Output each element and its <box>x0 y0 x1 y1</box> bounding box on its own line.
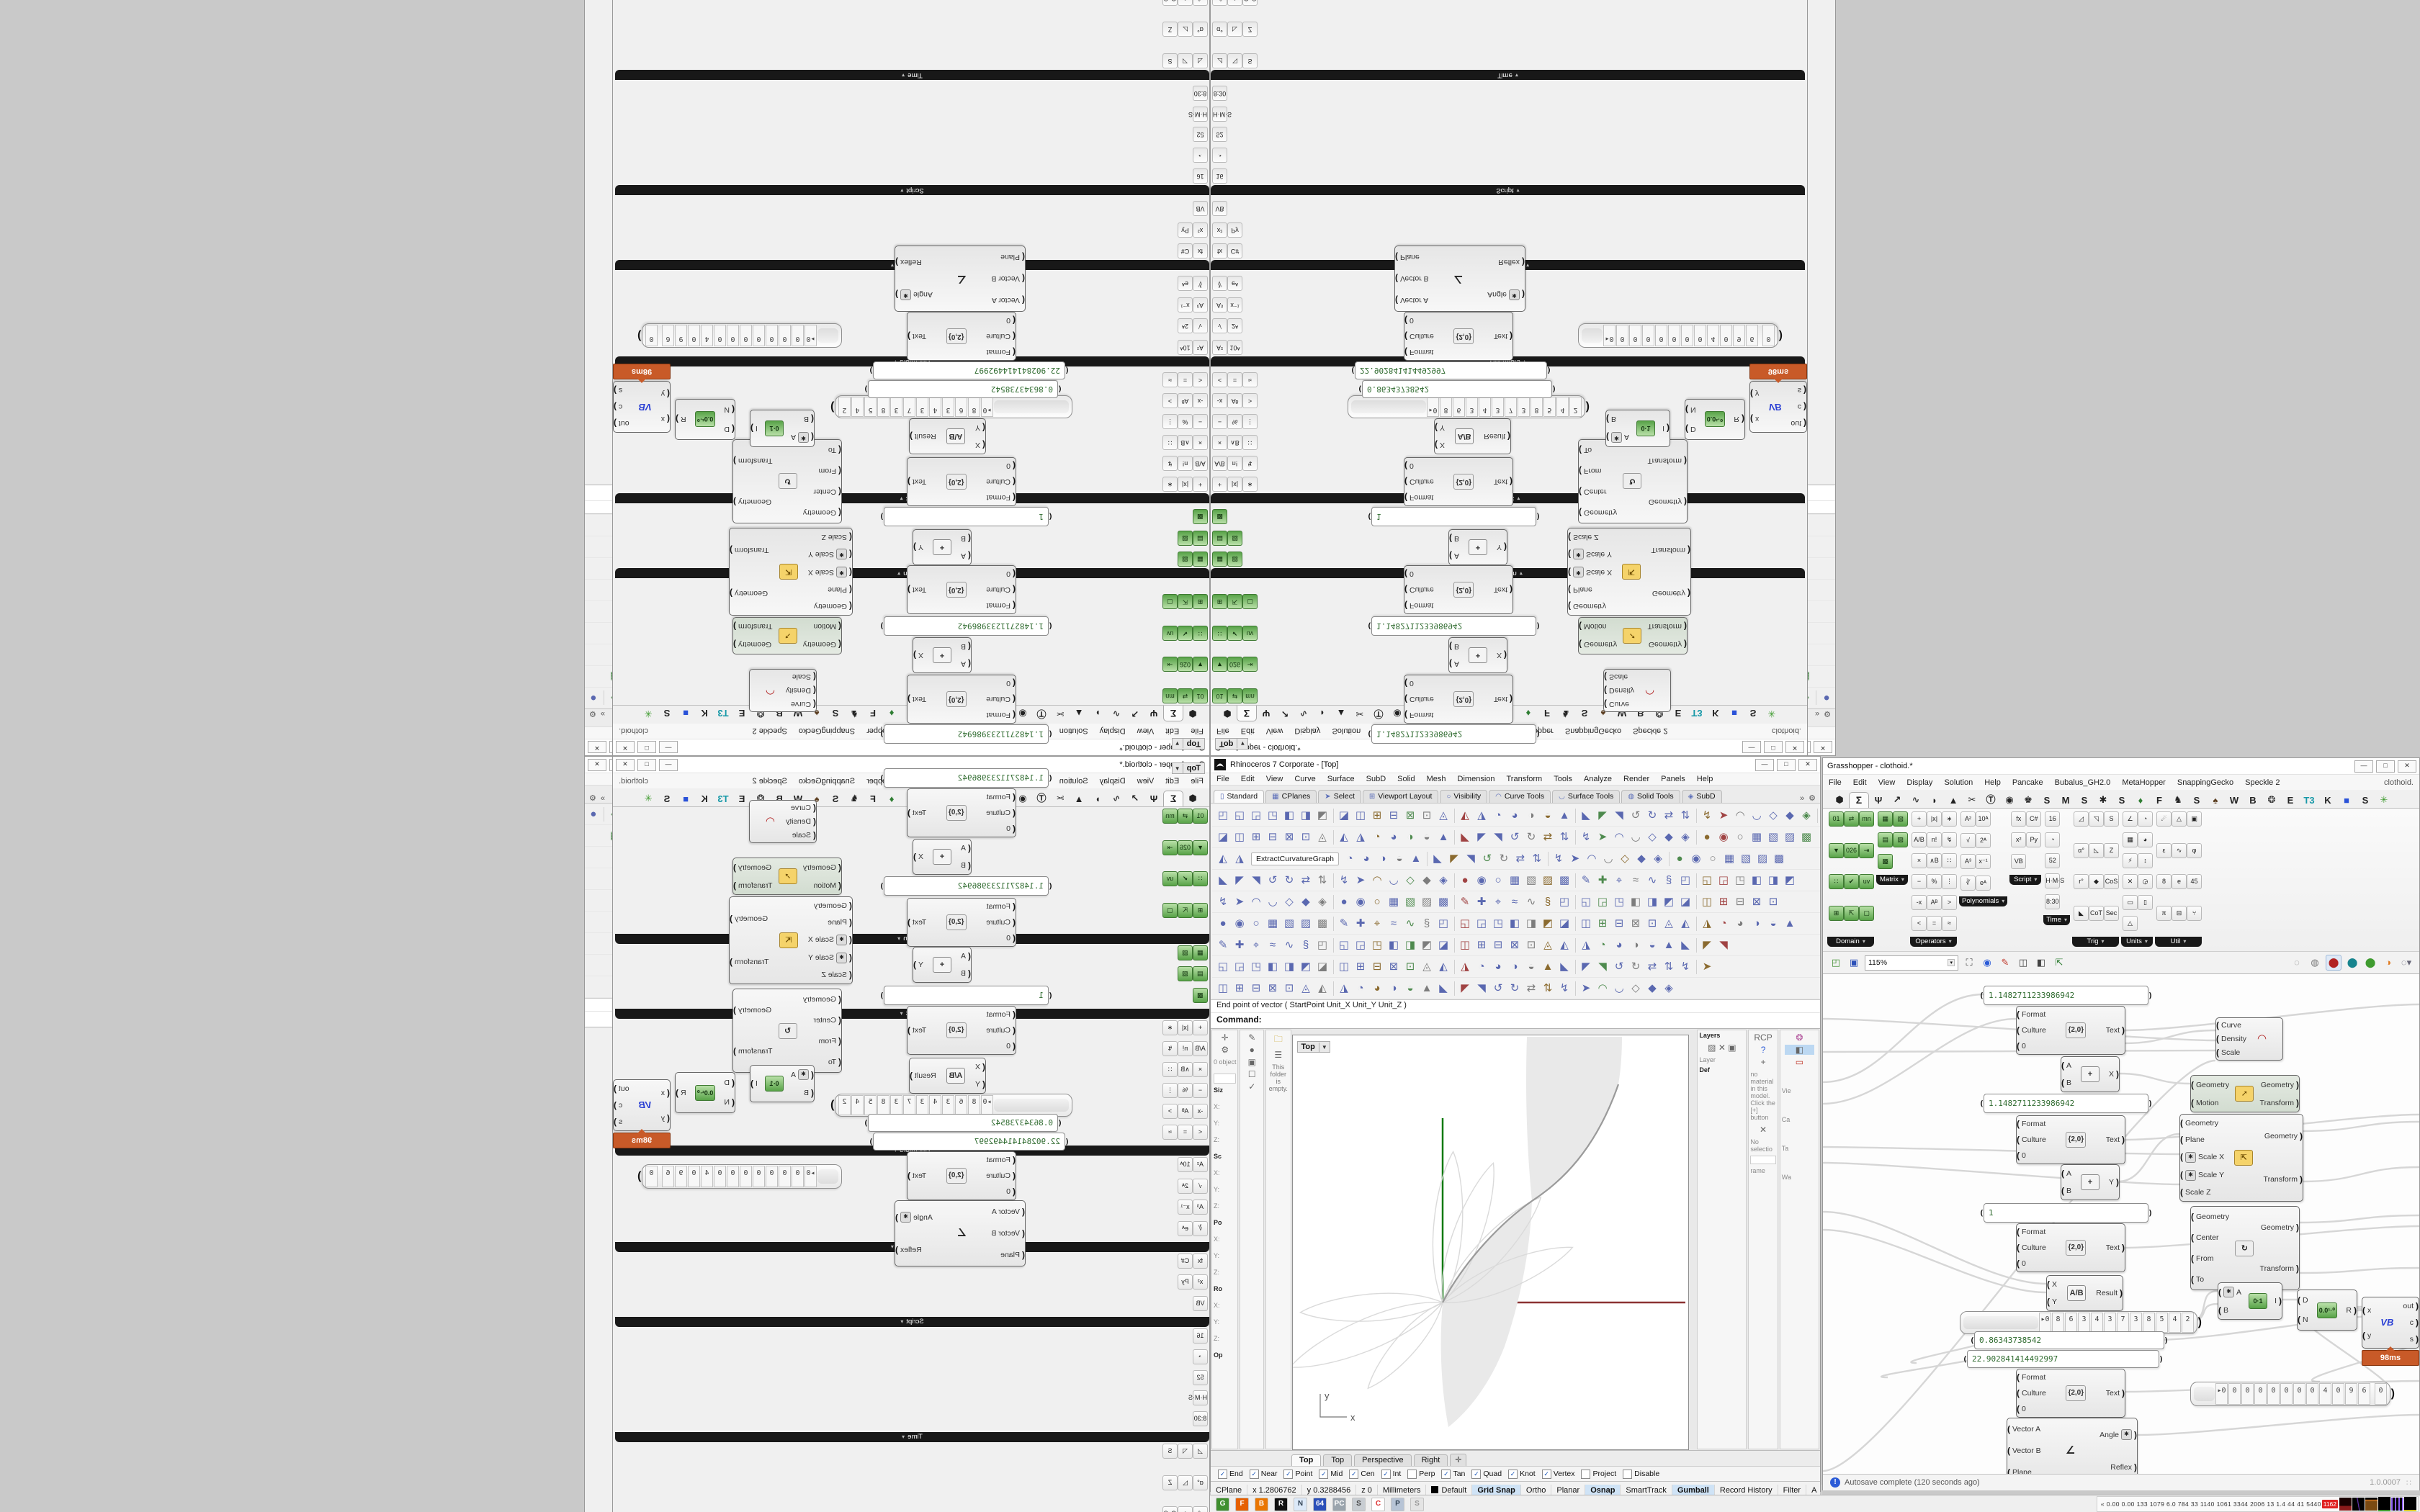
gh-component-icon[interactable]: ◿ <box>2074 811 2089 827</box>
slider-digit[interactable]: 3 <box>890 1095 902 1115</box>
expression-icon[interactable]: ✱ <box>1573 567 1584 577</box>
gh-component-icon[interactable]: + <box>1193 1020 1208 1035</box>
toolbar-icon[interactable]: ◤ <box>1474 829 1489 845</box>
expression-icon[interactable]: ✱ <box>1573 549 1584 559</box>
gh-component-icon[interactable]: Aᴮ <box>1927 895 1942 910</box>
gh-component[interactable]: FormatCulture0{2,0}Text <box>907 788 1016 837</box>
input-port-label[interactable]: Center <box>813 1016 836 1025</box>
gh-tab-1-maths[interactable]: Σ <box>1849 792 1869 808</box>
gh-component[interactable]: CurveDensityScale◠ <box>749 800 817 843</box>
gh-tab-1-maths[interactable]: Σ <box>1163 791 1183 806</box>
resize-grip-icon[interactable]: ∷ <box>2406 1478 2412 1488</box>
gh-tab-0[interactable]: ⬢ <box>1183 706 1202 721</box>
toolbar-icon[interactable]: ◒ <box>1540 808 1556 824</box>
slider-digit[interactable]: 2 <box>838 397 851 417</box>
gh-component-icon[interactable]: ⋮ <box>1162 1083 1178 1098</box>
toolbar-icon[interactable]: ◕ <box>1507 808 1523 824</box>
panel-icon[interactable]: ✛ <box>1212 1032 1237 1043</box>
gh-menu-bubalus_gh2.0[interactable]: Bubalus_GH2.0 <box>2049 778 2117 788</box>
gh-number-slider[interactable]: ▸0000000040960 <box>642 323 842 348</box>
gh-component-icon[interactable]: ▧ <box>1178 552 1193 567</box>
input-port-label[interactable]: Vector B <box>991 274 1020 283</box>
gh-component-icon[interactable]: VB <box>1193 201 1208 216</box>
gh-tab-29[interactable]: ✳ <box>639 791 658 806</box>
toolbar-icon[interactable]: ◱ <box>1232 808 1247 824</box>
gh-group-label[interactable]: Polynomials▾ <box>1959 896 2007 906</box>
gh-component-icon[interactable]: ⇄ <box>1227 688 1242 703</box>
slider-digit[interactable]: 4 <box>851 1095 864 1115</box>
gh-component-icon[interactable]: 026 <box>1227 657 1242 672</box>
toolbar-icon[interactable]: ◭ <box>1435 959 1451 975</box>
toolbar-icon[interactable]: ◳ <box>1369 937 1385 953</box>
input-port-label[interactable]: B <box>961 642 966 651</box>
toolbar-tab-cplanes[interactable]: ▦CPlanes <box>1265 790 1317 803</box>
gh-component-icon[interactable]: ∧B <box>1927 853 1942 868</box>
input-port-label[interactable]: x <box>661 415 665 424</box>
toolbar-icon[interactable]: ⊠ <box>1628 916 1644 932</box>
input-port-label[interactable]: Geometry <box>814 602 847 611</box>
gh-component-icon[interactable]: C# <box>2026 811 2041 827</box>
toolbar-icon[interactable]: ○ <box>1248 916 1264 932</box>
output-port-label[interactable]: c <box>619 402 622 411</box>
gh-component-icon[interactable]: < <box>1193 1125 1208 1140</box>
gh-component-icon[interactable]: ⑂ <box>2187 906 2202 921</box>
slider-digit[interactable]: 0 <box>688 1166 700 1187</box>
slider-digit[interactable]: ▸0 <box>2215 1383 2228 1405</box>
gh-component-icon[interactable]: ↯ <box>1162 1041 1178 1056</box>
gh-group-label[interactable]: Script▾ <box>1211 185 1805 195</box>
expand-icon[interactable]: ▾ <box>1517 187 1520 194</box>
output-port-label[interactable]: Reflex <box>900 1246 922 1254</box>
toolbar-icon[interactable]: ◤ <box>1457 981 1473 996</box>
toolbar-icon[interactable]: ◫ <box>1578 916 1594 932</box>
gh-component-icon[interactable]: % <box>1178 414 1193 429</box>
toolbar-icon[interactable]: ◭ <box>1215 851 1231 867</box>
gh-component-icon[interactable]: ⇥ <box>1242 657 1258 672</box>
input-port-label[interactable]: D <box>2303 1296 2308 1305</box>
gh-component-icon[interactable]: VB <box>1193 1296 1208 1311</box>
close-icon[interactable]: ✕ <box>616 759 635 771</box>
gh-component-icon[interactable]: ◆ <box>1178 1506 1193 1512</box>
rhino-menu-file[interactable]: File <box>1211 774 1235 784</box>
toolbar-icon[interactable]: ⊡ <box>1419 808 1435 824</box>
input-port-label[interactable]: From <box>819 467 837 475</box>
input-port-label[interactable]: B <box>1454 534 1459 543</box>
slider-digit[interactable]: 4 <box>1479 397 1491 417</box>
gh-tab-23[interactable]: ❂ <box>2262 793 2281 808</box>
input-port-label[interactable]: Culture <box>986 332 1010 341</box>
toolbar-icon[interactable]: ≈ <box>1628 873 1644 888</box>
minimize-icon[interactable]: — <box>659 759 678 771</box>
slider-digit[interactable]: 0 <box>1629 325 1641 346</box>
toolbar-icon[interactable]: ◕ <box>1732 916 1748 932</box>
gh-component-icon[interactable]: ⚡ <box>2123 853 2138 868</box>
gh-tab-8[interactable]: Ⓣ <box>1032 706 1051 723</box>
gh-component[interactable]: GeometryCenterFromTo↻GeometryTransform <box>2190 1206 2300 1290</box>
toolbar-icon[interactable]: ◩ <box>1298 959 1314 975</box>
gh-tab-16[interactable]: ♦ <box>2131 793 2150 808</box>
toolbar-icon[interactable]: ◧ <box>1749 873 1765 888</box>
toolbar-icon[interactable]: ∿ <box>1644 873 1660 888</box>
gh-component-icon[interactable]: > <box>1162 393 1178 408</box>
input-port-label[interactable]: From <box>819 1037 837 1045</box>
slider-digit[interactable]: 0 <box>766 325 778 346</box>
gh-tab-3[interactable]: ↗ <box>1888 793 1906 808</box>
input-port-label[interactable]: Motion <box>1584 623 1607 631</box>
toolbar-icon[interactable]: ↯ <box>1215 894 1231 910</box>
gh-tab-25[interactable]: T3 <box>714 792 732 806</box>
gh-component-icon[interactable]: ⇄ <box>1178 809 1193 824</box>
input-port-label[interactable]: Scale Z <box>821 971 847 979</box>
expression-icon[interactable]: ✱ <box>836 935 847 945</box>
layers-text[interactable]: Layer <box>1698 1055 1746 1065</box>
input-port-label[interactable]: Format <box>1410 348 1433 356</box>
gh-component-icon[interactable]: ◔ <box>2138 811 2153 827</box>
slider-digit[interactable]: 4 <box>2319 1383 2331 1405</box>
input-port-label[interactable]: x <box>661 1089 665 1097</box>
osnap-quad[interactable]: ✓Quad <box>1471 1470 1502 1479</box>
gh-component-icon[interactable]: ▤ <box>1193 966 1208 981</box>
gh-component-icon[interactable]: ⋮ <box>1942 874 1957 889</box>
toolbar-icon[interactable]: ◤ <box>1232 873 1247 888</box>
gh-component-icon[interactable]: C# <box>1178 1254 1193 1269</box>
gh-component-icon[interactable]: ≈ <box>1942 916 1957 931</box>
toolbar-icon[interactable]: ⊞ <box>1353 959 1368 975</box>
expand-icon[interactable]: ▾ <box>900 1010 903 1017</box>
gh-component-icon[interactable]: ▼ <box>1193 840 1208 855</box>
gh-component[interactable]: GeometryMotion➚GeometryTransform <box>1578 617 1688 654</box>
output-port-label[interactable]: R <box>2346 1306 2352 1315</box>
toolbar-icon[interactable]: ↺ <box>1479 851 1495 867</box>
toolbar-icon[interactable]: ◡ <box>1749 808 1765 824</box>
output-port-label[interactable]: Geometry <box>1649 498 1682 506</box>
output-port-label[interactable]: out <box>619 1084 629 1093</box>
input-port-label[interactable]: B <box>1611 415 1616 423</box>
toolbar-icon[interactable]: ↯ <box>1578 829 1594 845</box>
sketch-icon[interactable]: ✎ <box>1998 955 2012 970</box>
toolbar-icon[interactable]: ▦ <box>1749 829 1765 845</box>
toolbar-icon[interactable]: ↺ <box>1628 808 1644 824</box>
gh-component-icon[interactable]: eᴬ <box>1976 876 1991 891</box>
gh-component-icon[interactable]: ∧B <box>1227 435 1242 450</box>
toolbar-tab-standard[interactable]: ▯Standard <box>1214 790 1264 803</box>
slider-digit[interactable]: 0 <box>1668 325 1680 346</box>
output-port-label[interactable]: I <box>2275 1297 2277 1305</box>
output-port-label[interactable]: s <box>2410 1335 2414 1344</box>
toolbar-icon[interactable]: ↯ <box>1556 981 1572 996</box>
slider-digit[interactable]: 0 <box>1694 325 1706 346</box>
gh-component-icon[interactable]: A/B <box>1912 832 1927 847</box>
input-port-label[interactable]: Format <box>1410 601 1433 610</box>
toolbar-tab-viewport-layout[interactable]: ⊞Viewport Layout <box>1363 790 1439 803</box>
gh-component-icon[interactable]: √ <box>1212 319 1227 334</box>
gh-component[interactable]: AB+Y <box>913 947 972 983</box>
input-port-label[interactable]: Format <box>987 711 1010 719</box>
output-port-label[interactable]: Angle <box>2099 1431 2119 1439</box>
toolbar-tab-solid-tools[interactable]: ◍Solid Tools <box>1621 790 1680 803</box>
viewport-label[interactable]: Top▼ <box>1172 738 1205 750</box>
gh-tab-25[interactable]: T3 <box>714 706 732 720</box>
slider-digit[interactable]: 8 <box>877 1095 889 1115</box>
toolbar-icon[interactable]: ⊟ <box>1386 808 1402 824</box>
gh-component-icon[interactable]: Py <box>1227 222 1242 238</box>
gh-tab-19[interactable]: S <box>826 706 845 720</box>
slider-digit[interactable]: 0 <box>792 1166 804 1187</box>
gh-component-icon[interactable]: △ <box>2172 811 2187 827</box>
rhino-menu-mesh[interactable]: Mesh <box>1421 774 1452 784</box>
gh-component-icon[interactable]: Py <box>1178 1274 1193 1290</box>
gh-component-icon[interactable]: Aᴮ <box>1178 1104 1193 1119</box>
gh-tab-26[interactable]: K <box>695 792 714 806</box>
toolbar-icon[interactable]: ◠ <box>1584 851 1600 867</box>
toolbar-icon[interactable]: ◔ <box>1353 981 1368 996</box>
gh-component-icon[interactable]: ▩ <box>1193 988 1208 1003</box>
rhino-menu-view[interactable]: View <box>1260 774 1289 784</box>
gh-tab-18[interactable]: ♞ <box>845 706 864 721</box>
toolbar-icon[interactable]: ◑ <box>1375 851 1391 867</box>
output-port-label[interactable]: Transform <box>738 881 772 890</box>
toolbar-icon[interactable]: ⊠ <box>1281 829 1297 845</box>
gh-menu-speckle 2[interactable]: Speckle 2 <box>1627 726 1673 737</box>
output-port-label[interactable]: Result <box>2096 1289 2117 1297</box>
command-prompt[interactable]: Command: <box>1211 1012 1820 1029</box>
toolbar-icon[interactable]: ▦ <box>1721 851 1737 867</box>
gh-menu-snappinggecko[interactable]: SnappingGecko <box>1559 726 1627 737</box>
gh-component[interactable]: GeometryCenterFromTo↻GeometryTransform <box>732 439 842 523</box>
rhino-menu-transform[interactable]: Transform <box>1501 774 1549 784</box>
panel-icon[interactable]: ✓ <box>1240 1081 1263 1092</box>
toolbar-icon[interactable]: ◮ <box>1336 981 1352 996</box>
input-port-label[interactable]: To <box>1584 446 1592 454</box>
slider-digit[interactable]: ▸0 <box>805 325 817 346</box>
gh-component-icon[interactable]: ▯ <box>2138 895 2153 910</box>
gh-component-icon[interactable]: ▭ <box>2123 895 2138 910</box>
output-port-label[interactable]: Text <box>913 918 926 927</box>
gh-component-icon[interactable]: ⇄ <box>1178 688 1193 703</box>
toolbar-icon[interactable]: ○ <box>1732 829 1748 845</box>
gh-menu-speckle 2[interactable]: Speckle 2 <box>2239 778 2285 788</box>
gh-component[interactable]: FormatCulture0{2,0}Text <box>1404 457 1513 506</box>
osnap-near[interactable]: ✓Near <box>1250 1470 1278 1479</box>
gh-tab-27[interactable]: ■ <box>676 706 695 720</box>
toolbar-icon[interactable]: ≈ <box>1265 937 1281 953</box>
output-port-label[interactable]: Geometry <box>735 589 768 598</box>
viewport-tab-right-3[interactable]: Right <box>1414 1454 1448 1466</box>
gh-menu-snappinggecko[interactable]: SnappingGecko <box>2172 778 2239 788</box>
gh-component-icon[interactable]: 52 <box>1193 127 1208 142</box>
output-port-label[interactable]: Geometry <box>2261 1223 2294 1232</box>
toolbar-icon[interactable]: ◉ <box>1474 873 1489 888</box>
toolbar-icon[interactable]: ◠ <box>1732 808 1748 824</box>
input-port-label[interactable]: Culture <box>1410 695 1434 703</box>
gh-component-icon[interactable]: + <box>1212 477 1227 492</box>
toolbar-icon[interactable]: ◒ <box>1765 916 1781 932</box>
gh-panel-node[interactable]: 1 <box>1371 507 1536 526</box>
gh-component-icon[interactable]: ◔ <box>2045 832 2060 847</box>
rhino-menu-dimension[interactable]: Dimension <box>1452 774 1501 784</box>
toolbar-icon[interactable]: ↻ <box>1644 808 1660 824</box>
output-port-label[interactable]: Transform <box>738 623 772 631</box>
toolbar-icon[interactable]: ⊠ <box>1749 894 1765 910</box>
toolbar-icon[interactable]: ✎ <box>1336 916 1352 932</box>
input-port-label[interactable]: Culture <box>1410 585 1434 594</box>
slider-digit[interactable]: 0 <box>645 325 658 346</box>
gh-component-icon[interactable]: ⊟ <box>2172 906 2187 921</box>
toolbar-icon[interactable]: ⇄ <box>1523 981 1539 996</box>
output-port-label[interactable]: Transform <box>1652 546 1685 554</box>
output-port-label[interactable]: Text <box>2106 1243 2120 1252</box>
gh-component-icon[interactable]: × <box>1912 853 1927 868</box>
gh-component-icon[interactable]: 16 <box>1212 168 1227 184</box>
gh-menu-speckle 2[interactable]: Speckle 2 <box>747 776 793 786</box>
gh-component-icon[interactable]: mn <box>1162 688 1178 703</box>
toolbar-icon[interactable]: ◥ <box>1474 981 1489 996</box>
gh-panel-node[interactable]: 1.1482711233986942 <box>884 724 1049 744</box>
toolbar-icon[interactable]: ⇅ <box>1556 829 1572 845</box>
gh-tab-3[interactable]: ↗ <box>1126 791 1144 806</box>
gh-component[interactable]: Vector AVector BPlane∠Angle✱Reflex <box>2007 1418 2138 1475</box>
gh-component-icon[interactable]: > <box>1242 393 1258 408</box>
toolbar-icon[interactable]: ◆ <box>1298 894 1314 910</box>
gh-tab-6[interactable]: ▲ <box>1332 706 1350 720</box>
gh-component-icon[interactable]: 10ᴬ <box>1976 811 1991 827</box>
toolbar-icon[interactable]: ⊠ <box>1507 937 1523 953</box>
input-port-label[interactable]: Format <box>2022 1120 2045 1128</box>
gh-component-icon[interactable]: ▩ <box>1878 854 1893 869</box>
gh-component-icon[interactable]: 2ᴬ <box>1178 1179 1193 1194</box>
output-port-label[interactable]: Geometry <box>1649 641 1682 649</box>
gh-tab-25[interactable]: T3 <box>2300 793 2318 808</box>
slider-digit[interactable]: 8 <box>1531 397 1543 417</box>
gh-group-label[interactable]: Time▾ <box>1211 70 1805 80</box>
gh-component-icon[interactable]: + <box>1912 811 1927 827</box>
preview-custom-orange-icon[interactable]: ◑ <box>2381 955 2396 970</box>
gh-component-icon[interactable]: x⁻¹ <box>1227 297 1242 312</box>
input-port-label[interactable]: 0 <box>1006 679 1010 688</box>
gh-component-icon[interactable]: uv <box>1859 874 1874 889</box>
slider-digit[interactable]: 5 <box>864 1095 877 1115</box>
gh-tab-21[interactable]: W <box>2225 793 2244 808</box>
zoom-select[interactable]: 115% ▾ <box>1865 955 1958 971</box>
toolbar-icon[interactable]: ◨ <box>1281 959 1297 975</box>
gh-tab-18[interactable]: ♞ <box>2169 793 2187 808</box>
gh-group-label[interactable]: Util▾ <box>2155 937 2202 947</box>
gh-component-icon[interactable]: mn <box>1242 688 1258 703</box>
output-port-label[interactable]: c <box>2410 1318 2414 1327</box>
toolbar-icon[interactable]: ➤ <box>1353 873 1368 888</box>
toolbar-icon[interactable]: ⊡ <box>1765 894 1781 910</box>
gh-tab-11[interactable]: S <box>2038 793 2056 808</box>
gh-group-label[interactable]: Matrix▾ <box>1876 875 1908 885</box>
input-port-label[interactable]: Format <box>987 793 1010 801</box>
gh-component-icon[interactable]: ◆ <box>1227 0 1242 6</box>
toolbar-icon[interactable]: ◥ <box>1248 873 1264 888</box>
input-port-label[interactable]: y <box>2367 1331 2371 1340</box>
toolbar-icon[interactable]: ◫ <box>1353 808 1368 824</box>
slider-digit[interactable]: 0 <box>727 325 739 346</box>
gh-component-icon[interactable]: − <box>1193 1083 1208 1098</box>
gh-component-icon[interactable]: ◹ <box>1178 53 1193 68</box>
toolbar-icon[interactable]: ◆ <box>1633 851 1649 867</box>
slider-digit[interactable]: ▸0 <box>1427 397 1439 417</box>
slider-digit[interactable]: 3 <box>916 1095 928 1115</box>
gh-component-icon[interactable]: ∷ <box>1162 1062 1178 1077</box>
gh-tab-5[interactable]: ◗ <box>1088 706 1107 720</box>
slider-digit[interactable]: 6 <box>1746 325 1758 346</box>
input-port-label[interactable]: Format <box>987 601 1010 610</box>
input-port-label[interactable]: N <box>724 405 730 414</box>
toolbar-icon[interactable]: ⇄ <box>1298 873 1314 888</box>
gh-component-icon[interactable]: ▤ <box>1878 832 1893 847</box>
gh-tab-6[interactable]: ▲ <box>1070 706 1088 720</box>
expand-icon[interactable]: ▾ <box>2183 938 2186 945</box>
gh-panel-node[interactable]: 1 <box>884 986 1049 1005</box>
close-icon[interactable]: ✕ <box>1785 741 1804 753</box>
toolbar-icon[interactable]: ↻ <box>1628 959 1644 975</box>
slider-digit[interactable]: 7 <box>903 397 915 417</box>
toolbar-icon[interactable]: ⇅ <box>1540 981 1556 996</box>
gh-panel-node[interactable]: 1.1482711233986942 <box>1984 1094 2148 1113</box>
input-port-label[interactable]: Plane <box>828 918 847 927</box>
toolbar-icon[interactable]: ◪ <box>1435 937 1451 953</box>
taskbar-app-icon[interactable]: C <box>1371 1498 1385 1511</box>
checkbox-icon[interactable]: ✓ <box>1542 1470 1551 1479</box>
output-port-label[interactable]: Angle <box>913 290 933 299</box>
gh-component[interactable]: FormatCulture0{2,0}Text <box>907 898 1016 947</box>
gh-component-icon[interactable]: mn <box>1162 809 1178 824</box>
panel-icon[interactable]: ✎ <box>1240 1032 1263 1043</box>
toolbar-icon[interactable]: ◧ <box>1386 937 1402 953</box>
gh-component-icon[interactable]: S <box>1162 53 1178 68</box>
input-port-label[interactable]: Culture <box>986 695 1010 703</box>
toolbar-icon[interactable]: ◲ <box>1248 808 1264 824</box>
toolbar-icon[interactable]: ⊡ <box>1523 937 1539 953</box>
toolbar-icon[interactable]: ● <box>586 690 601 706</box>
panel-icon[interactable]: ● <box>1240 1045 1263 1055</box>
toolbar-icon[interactable]: ◔ <box>1369 829 1385 845</box>
gh-component[interactable]: FormatCulture0{2,0}Text <box>907 565 1016 614</box>
gh-menu-file[interactable]: File <box>1211 726 1235 737</box>
gh-menu-display[interactable]: Display <box>1094 776 1131 786</box>
gh-component-icon[interactable]: A³ <box>1960 854 1976 869</box>
toolbar-icon[interactable]: ◇ <box>1617 851 1633 867</box>
gh-component-icon[interactable]: = <box>1178 372 1193 387</box>
slider-digit[interactable]: 0 <box>779 325 791 346</box>
toolbar-icon[interactable]: ✚ <box>1595 873 1610 888</box>
gh-component-icon[interactable]: Aᴮ <box>1227 393 1242 408</box>
output-port-label[interactable]: I <box>1662 424 1664 433</box>
slider-digit[interactable]: 6 <box>1453 397 1465 417</box>
input-port-label[interactable]: Curve <box>791 804 811 812</box>
toolbar-icon[interactable]: ◰ <box>1556 894 1572 910</box>
toolbar-tab-curve-tools[interactable]: ◠Curve Tools <box>1489 790 1551 803</box>
gh-menu-solution[interactable]: Solution <box>1054 776 1094 786</box>
gh-component-icon[interactable]: ▼ <box>1193 657 1208 672</box>
gh-tab-17[interactable]: F <box>864 706 882 720</box>
projector-icon[interactable]: ◫ <box>2016 955 2030 970</box>
gh-menu-file[interactable]: File <box>1185 776 1209 786</box>
output-port-label[interactable]: I <box>756 424 758 433</box>
gh-component[interactable]: AB+Y <box>1448 529 1507 565</box>
expand-icon[interactable]: ▾ <box>1949 938 1952 945</box>
input-port-label[interactable]: Geometry <box>803 508 836 517</box>
gh-component[interactable]: FormatCulture0{2,0}Text <box>2016 1223 2125 1272</box>
toolbar-icon[interactable]: ⊡ <box>1281 981 1297 996</box>
toolbar-icon[interactable]: ◤ <box>1578 959 1594 975</box>
output-port-label[interactable]: X <box>2109 1070 2114 1079</box>
extract-curvature-graph-button[interactable]: ExtractCurvatureGraph <box>1251 852 1339 865</box>
gh-menu-view[interactable]: View <box>1131 726 1160 737</box>
